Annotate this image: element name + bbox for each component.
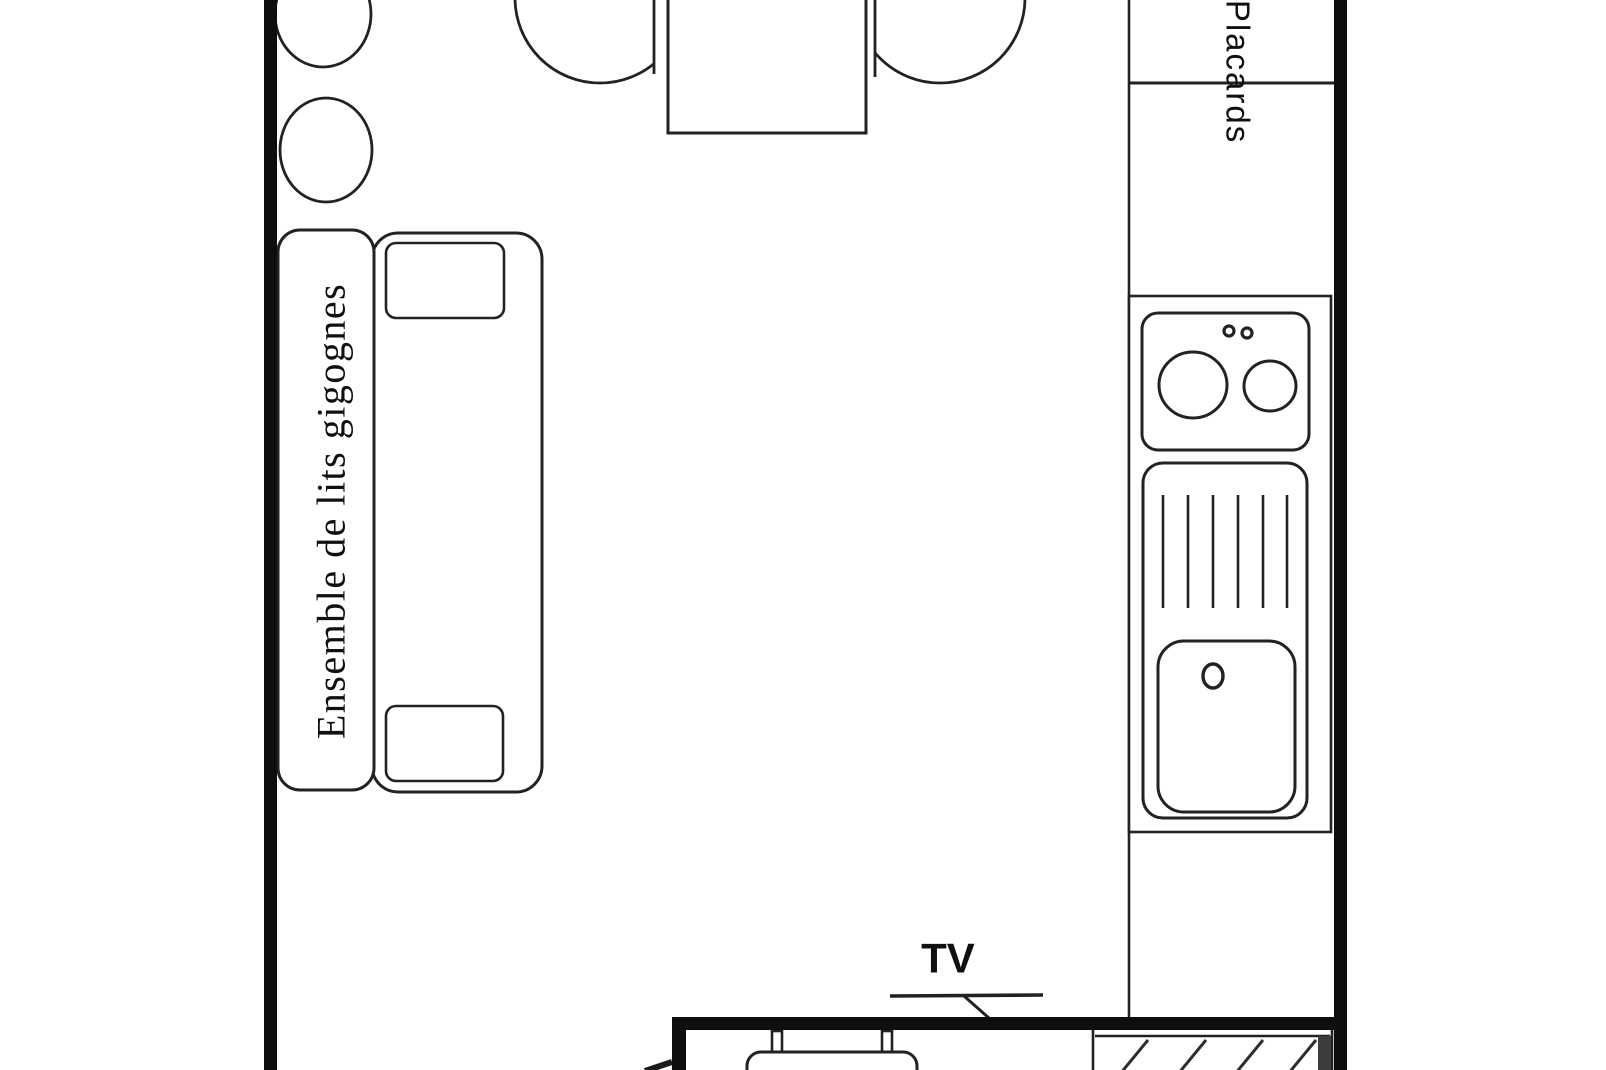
pillow-bottom xyxy=(386,706,503,781)
wall-right xyxy=(1334,0,1347,1070)
bench-seat xyxy=(747,1052,917,1070)
sink-basin xyxy=(1158,641,1295,812)
stool-circle-bottom xyxy=(280,98,372,202)
cabinet-right-bar xyxy=(1318,1036,1331,1070)
wall-left xyxy=(264,0,277,1070)
sink-drain xyxy=(1203,664,1223,688)
wall-bottom-room-top xyxy=(672,1017,1334,1030)
hatched-cabinet xyxy=(1093,1028,1332,1070)
pillow-top xyxy=(386,243,504,318)
wall-bottom-room-left xyxy=(672,1017,686,1070)
stove-group xyxy=(1142,313,1309,450)
floor-plan: Ensemble de lits gigognes xyxy=(0,0,1606,1070)
floor-background xyxy=(0,0,1606,1070)
sink-group xyxy=(1143,463,1307,818)
bed-group: Ensemble de lits gigognes xyxy=(278,230,542,792)
tv-label: TV xyxy=(921,935,975,982)
burner-small xyxy=(1244,361,1296,411)
burner-large xyxy=(1159,352,1227,418)
dining-table xyxy=(668,0,866,133)
tv-shelf xyxy=(890,995,1043,996)
bed-label: Ensemble de lits gigognes xyxy=(309,283,354,739)
closets-label: Placards xyxy=(1220,0,1257,144)
